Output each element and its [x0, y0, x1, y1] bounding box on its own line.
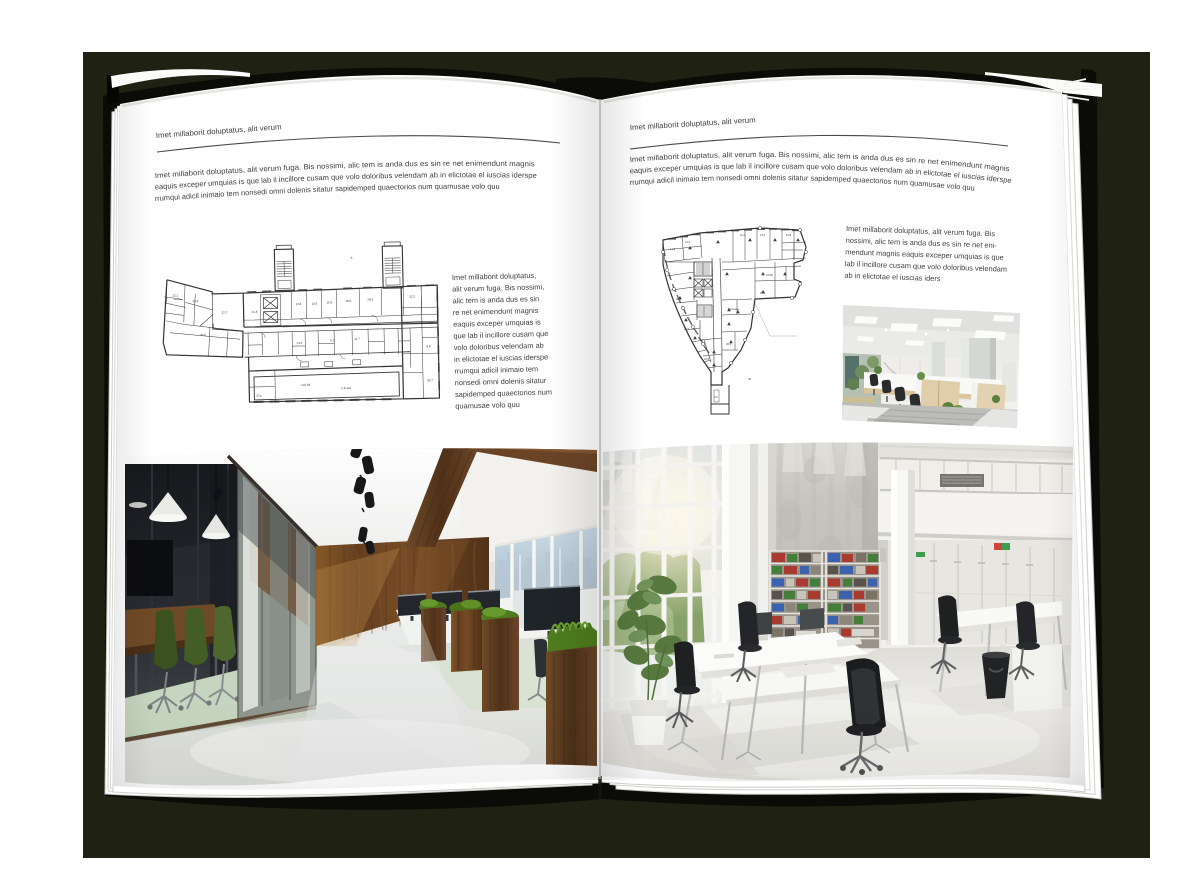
svg-text:98.6: 98.6 — [676, 297, 682, 301]
svg-text:6.2: 6.2 — [714, 395, 718, 399]
svg-text:37.7: 37.7 — [222, 311, 228, 315]
svg-text:8.8: 8.8 — [426, 344, 431, 348]
svg-text:12.6: 12.6 — [685, 240, 691, 244]
svg-text:11.8: 11.8 — [326, 300, 332, 304]
svg-text:32.2: 32.2 — [409, 295, 415, 299]
svg-text:A: A — [350, 256, 352, 260]
svg-text:Большая: Большая — [728, 307, 739, 311]
svg-text:11.2: 11.2 — [740, 233, 745, 237]
svg-text:2-й зал: 2-й зал — [341, 386, 351, 390]
svg-text:14.8: 14.8 — [670, 247, 676, 251]
svg-text:28.6: 28.6 — [192, 299, 198, 303]
svg-text:25.6: 25.6 — [684, 327, 690, 331]
svg-text:14.6: 14.6 — [760, 291, 766, 295]
svg-text:12.1: 12.1 — [172, 294, 178, 298]
svg-text:6.2: 6.2 — [330, 338, 335, 342]
svg-text:15.08: 15.08 — [766, 273, 773, 277]
svg-text:11.7: 11.7 — [354, 337, 360, 341]
svg-text:21.8: 21.8 — [252, 310, 258, 314]
svg-text:27a: 27a — [256, 394, 261, 398]
svg-text:12.8: 12.8 — [704, 357, 710, 361]
svg-text:35.7: 35.7 — [427, 378, 433, 382]
svg-text:13.8: 13.8 — [295, 302, 301, 306]
svg-text:18.5: 18.5 — [345, 299, 351, 303]
svg-text:10.6: 10.6 — [311, 302, 317, 306]
svg-text:ЛК: ЛК — [748, 377, 752, 381]
svg-text:14.3: 14.3 — [296, 341, 302, 345]
svg-text:10.8: 10.8 — [786, 233, 792, 237]
svg-text:40.2: 40.2 — [200, 333, 206, 337]
svg-text:143.66: 143.66 — [301, 383, 311, 387]
svg-text:2.70: 2.70 — [283, 324, 289, 328]
svg-text:28.6: 28.6 — [367, 297, 373, 301]
svg-text:13.4: 13.4 — [760, 233, 766, 237]
svg-text:quamusae volo quu: quamusae volo quu — [455, 400, 520, 411]
svg-text:36.2: 36.2 — [726, 342, 732, 346]
